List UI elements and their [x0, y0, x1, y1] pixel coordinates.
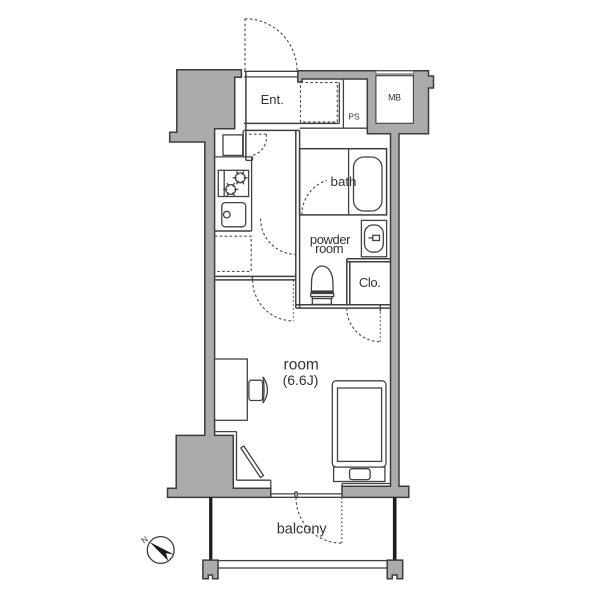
svg-text:MB: MB — [388, 93, 401, 103]
svg-text:(6.6J): (6.6J) — [283, 372, 319, 388]
svg-text:Clo.: Clo. — [359, 275, 381, 290]
svg-text:bath: bath — [331, 174, 357, 189]
svg-text:balcony: balcony — [277, 522, 328, 538]
svg-text:Ent.: Ent. — [261, 92, 284, 107]
svg-text:room: room — [315, 241, 343, 256]
svg-text:PS: PS — [348, 112, 360, 122]
svg-text:room: room — [284, 356, 319, 373]
